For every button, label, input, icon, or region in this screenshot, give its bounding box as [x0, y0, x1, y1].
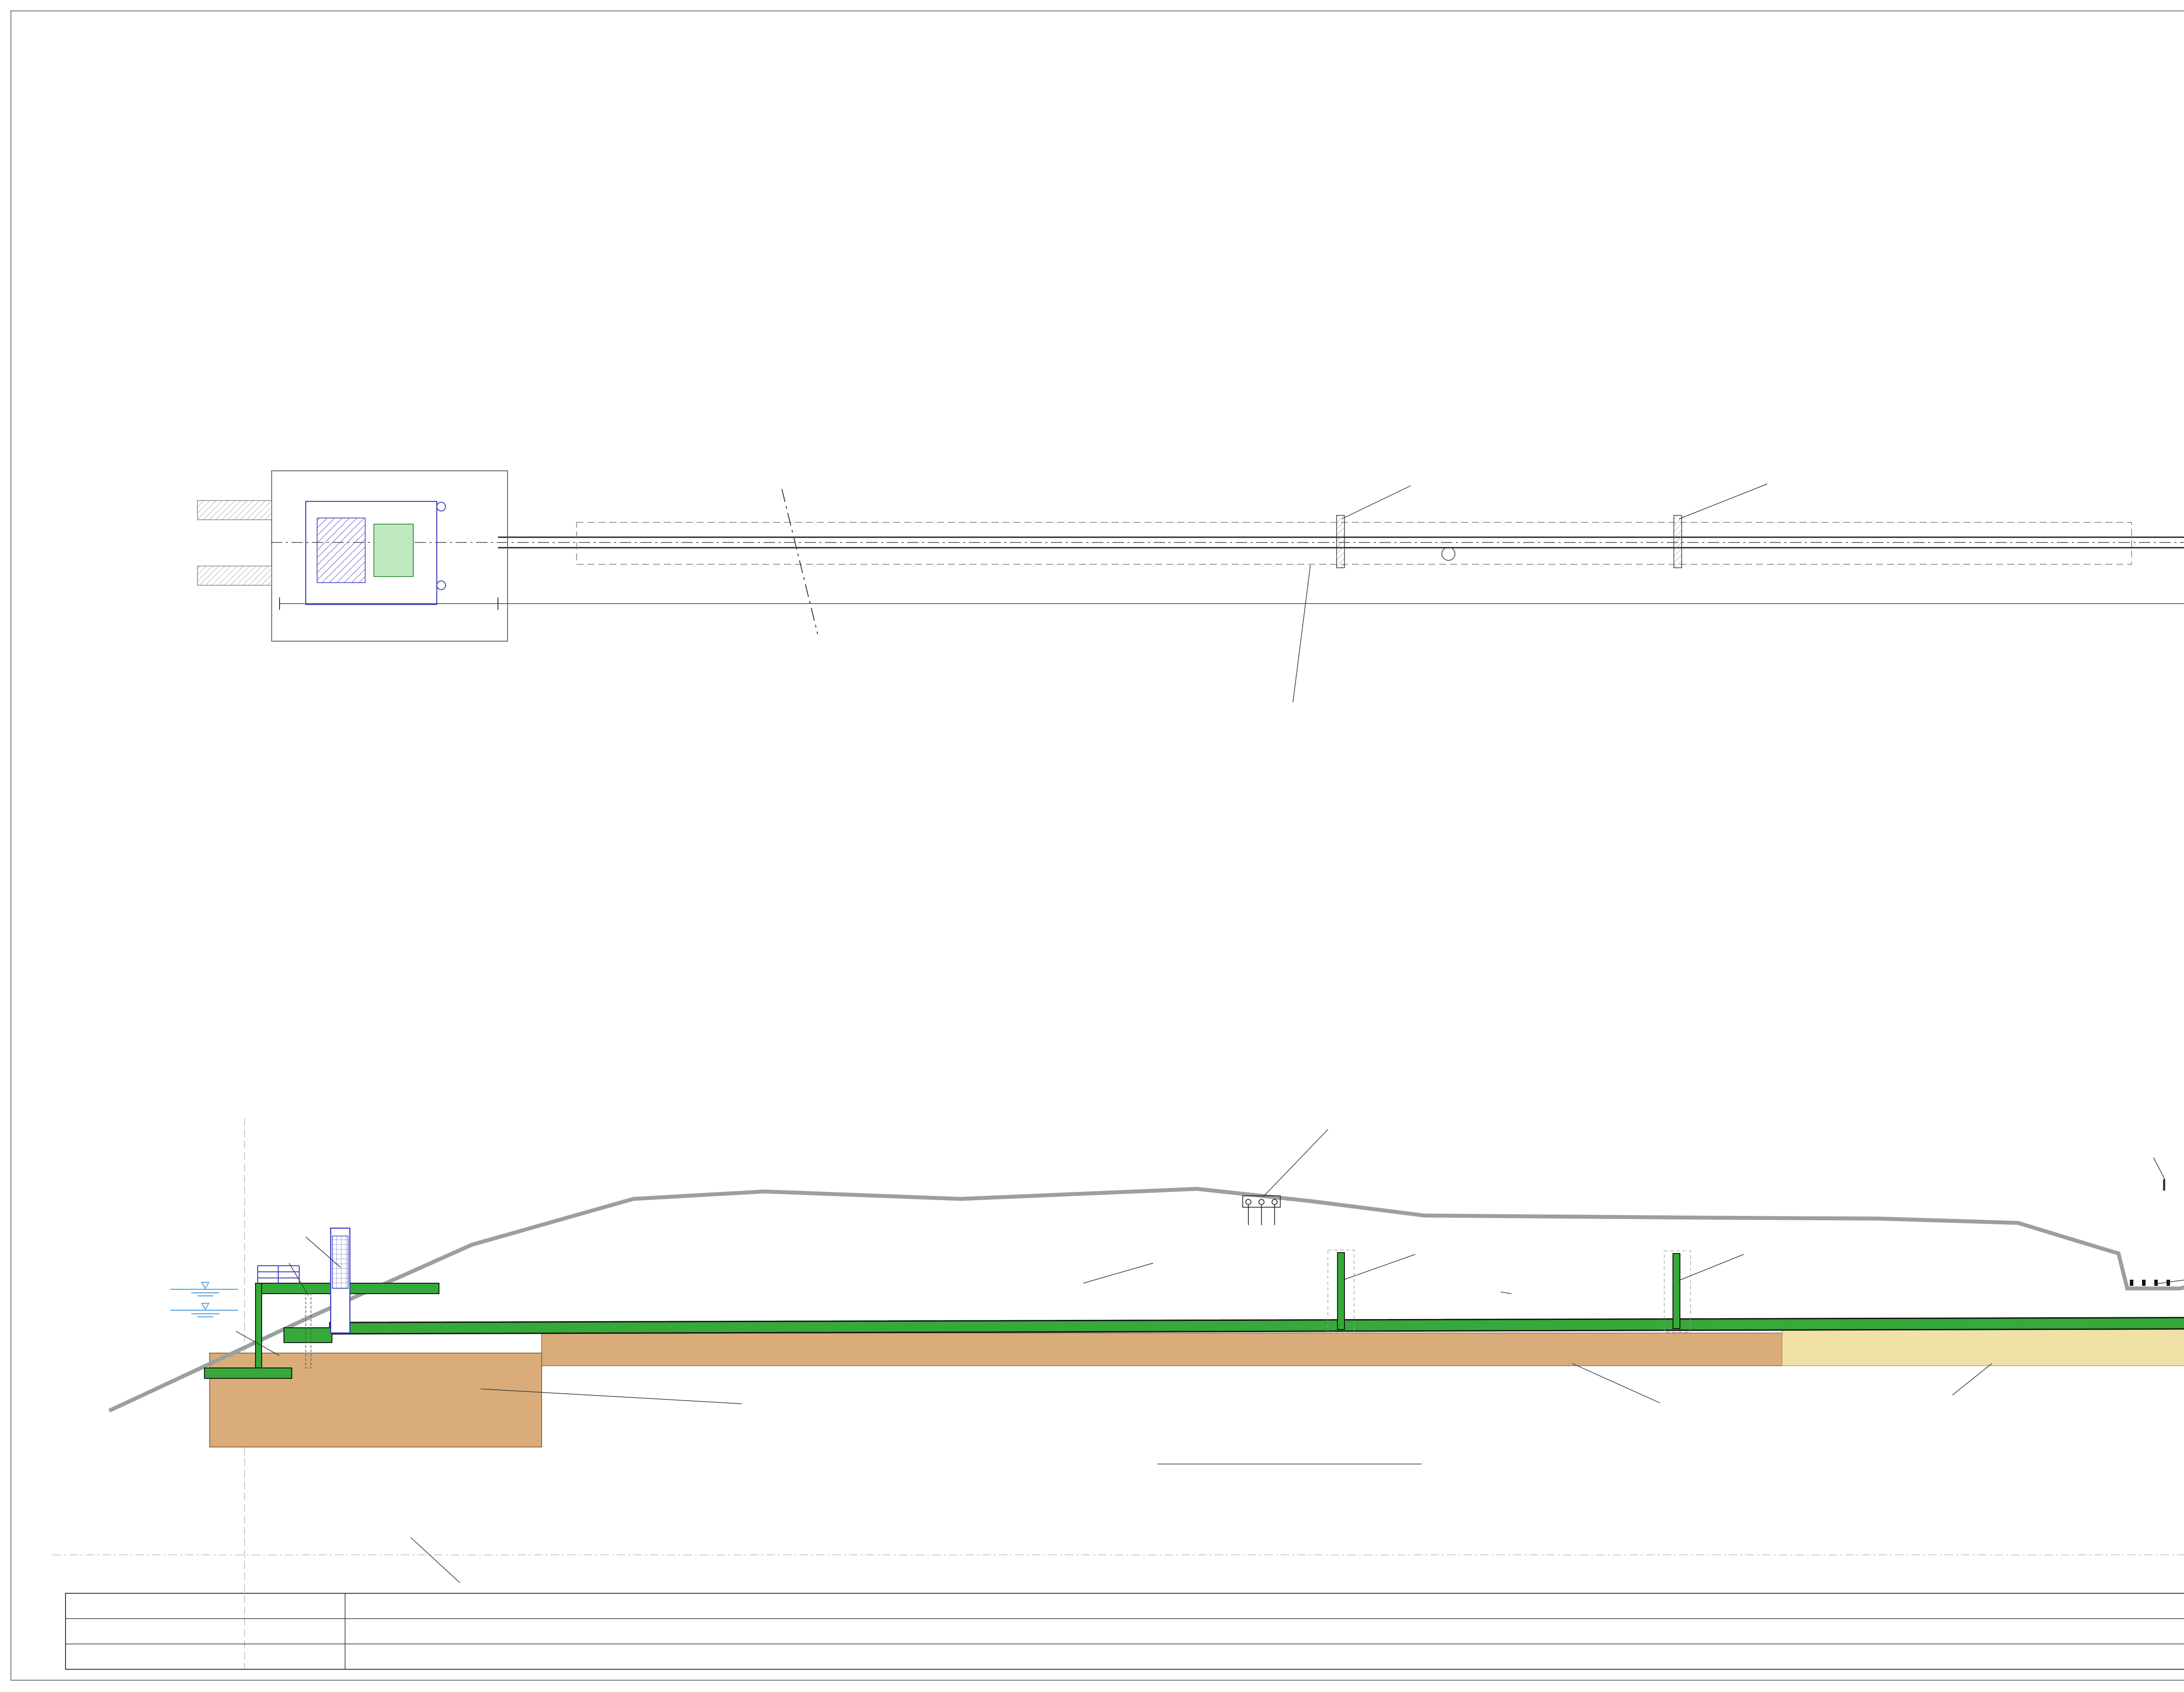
plan-view [197, 79, 2184, 702]
stationing-strip [66, 1593, 2184, 1669]
laengsschnitt-section [52, 1118, 2184, 1669]
drawing-linework [0, 0, 2184, 1692]
plan-sheet [0, 0, 2184, 1692]
